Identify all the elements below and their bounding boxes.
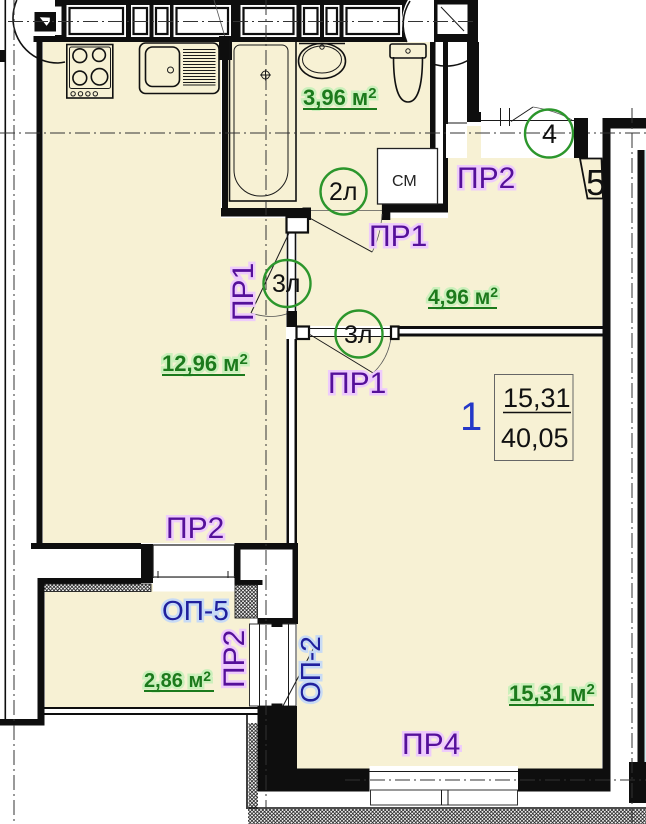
svg-text:3л: 3л xyxy=(344,321,373,349)
svg-text:2,86 м2: 2,86 м2 xyxy=(144,668,211,692)
svg-text:12,96 м2: 12,96 м2 xyxy=(162,351,248,376)
svg-text:ПР2: ПР2 xyxy=(457,162,515,195)
svg-text:15,31 м2: 15,31 м2 xyxy=(509,681,595,706)
svg-text:3л: 3л xyxy=(272,270,301,298)
svg-text:1: 1 xyxy=(460,395,482,439)
svg-text:ПР2: ПР2 xyxy=(218,630,251,688)
svg-text:15,31: 15,31 xyxy=(503,383,571,413)
svg-text:ПР1: ПР1 xyxy=(369,220,427,253)
svg-text:ПР4: ПР4 xyxy=(402,728,460,761)
svg-text:4,96 м2: 4,96 м2 xyxy=(428,284,498,309)
svg-text:3,96 м2: 3,96 м2 xyxy=(303,85,377,110)
svg-text:ОП-2: ОП-2 xyxy=(295,636,326,703)
svg-text:СМ: СМ xyxy=(392,173,417,190)
svg-text:2л: 2л xyxy=(329,178,358,206)
svg-text:40,05: 40,05 xyxy=(501,423,569,453)
svg-text:4: 4 xyxy=(542,119,557,149)
svg-text:ПР2: ПР2 xyxy=(166,512,224,545)
svg-text:ПР1: ПР1 xyxy=(328,367,386,400)
svg-text:5: 5 xyxy=(586,162,606,203)
svg-text:ПР1: ПР1 xyxy=(227,263,260,321)
svg-text:ОП-5: ОП-5 xyxy=(162,595,229,626)
